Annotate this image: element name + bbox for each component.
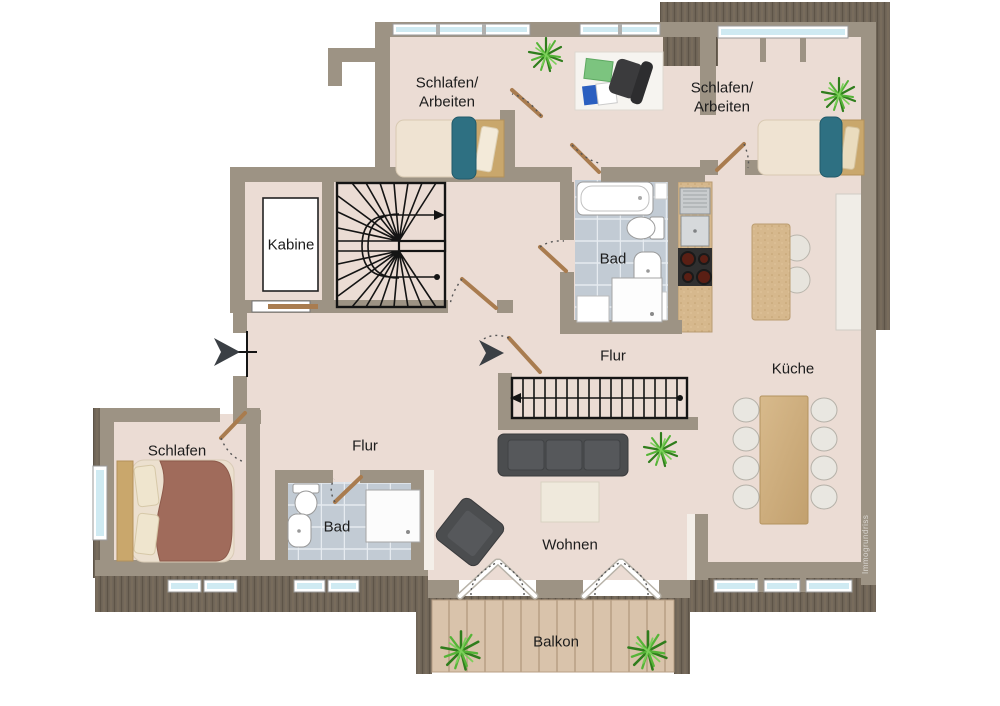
- sofa: [498, 434, 628, 476]
- sliding-door: [252, 301, 318, 312]
- kitchen-sink: [680, 188, 710, 246]
- window: [393, 24, 530, 35]
- floorplan: Schlafen/ Arbeiten Schlafen/ Arbeiten Ka…: [0, 0, 1000, 706]
- floorplan-drawing: [0, 0, 1000, 706]
- shower: [612, 278, 662, 322]
- sink: [288, 514, 311, 547]
- kitchen-island: [752, 224, 790, 320]
- bed-top-right: [758, 117, 864, 177]
- window: [93, 466, 107, 540]
- toilet: [627, 217, 664, 239]
- window: [580, 24, 660, 35]
- bathtub: [577, 182, 653, 215]
- stove: [678, 248, 712, 286]
- dining-table: [760, 396, 808, 524]
- bath-cabinet: [577, 296, 609, 322]
- bed-double: [117, 460, 234, 562]
- bed-top-left: [396, 117, 504, 179]
- kabine-box: [263, 198, 318, 291]
- sloped-ceiling-strip: [424, 470, 434, 570]
- toilet: [293, 484, 319, 515]
- winder-staircase: [337, 183, 445, 307]
- sloped-ceiling-strip: [687, 514, 695, 580]
- window: [714, 580, 852, 592]
- tall-cabinet: [836, 194, 862, 330]
- watermark: Immogrundriss: [861, 494, 877, 574]
- coffee-table: [541, 482, 599, 522]
- shower: [366, 490, 420, 542]
